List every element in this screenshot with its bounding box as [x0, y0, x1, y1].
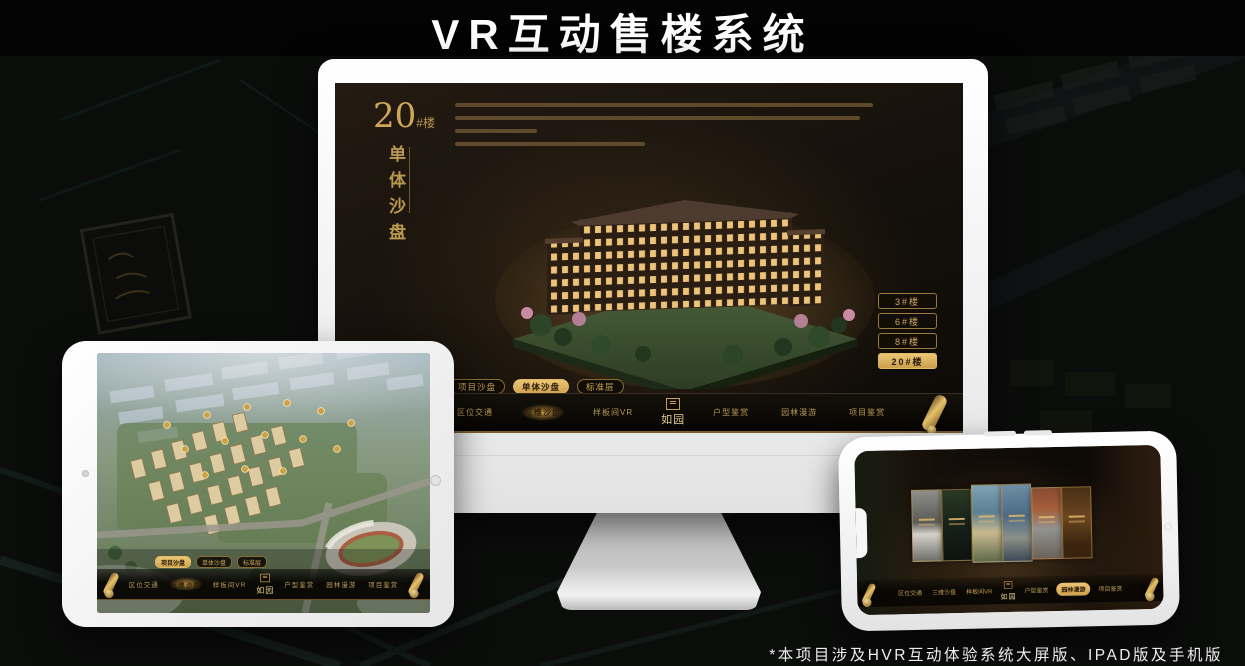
- description-line: [455, 103, 873, 107]
- scroll-menu-icon-left[interactable]: [102, 571, 120, 596]
- tablet-nav-project-gallery[interactable]: 项目鉴赏: [366, 577, 400, 591]
- building-render: [483, 149, 887, 389]
- scroll-menu-icon-left[interactable]: [861, 582, 877, 605]
- tablet-sandbox-tabs: 项目沙盘 单体沙盘 标准层: [155, 556, 267, 568]
- phone-navbar: 区位交通 三维沙盘 样板间VR 如园 户型鉴赏 园林漫游 项目鉴赏: [857, 574, 1163, 607]
- building-description-placeholder: [455, 103, 873, 155]
- phone-nav-showroom-vr[interactable]: 样板间VR: [964, 584, 995, 598]
- tablet-nav-unit-plans[interactable]: 户型鉴赏: [282, 577, 316, 591]
- scene-card-architecture[interactable]: [911, 489, 943, 562]
- nav-item-sandbox[interactable]: 三维沙盘: [521, 404, 565, 421]
- background-plaque: [81, 215, 190, 333]
- tablet-nav-location[interactable]: 区位交通: [127, 577, 161, 591]
- brand-logo-text: 如园: [661, 411, 685, 427]
- phone-screen: 区位交通 三维沙盘 样板间VR 如园 户型鉴赏 园林漫游 项目鉴赏: [854, 445, 1163, 615]
- brand-logo[interactable]: 如园: [661, 398, 685, 427]
- tab-project-sandbox[interactable]: 项目沙盘: [449, 379, 505, 394]
- building-number: 20: [373, 96, 416, 136]
- tablet-tab-standard-floor[interactable]: 标准层: [237, 556, 267, 568]
- tablet-nav-sandbox[interactable]: 三维沙盘: [169, 577, 203, 591]
- phone-nav-sandbox[interactable]: 三维沙盘: [930, 585, 958, 599]
- scene-card-autumn[interactable]: [1031, 487, 1063, 560]
- nav-item-unit-plans[interactable]: 户型鉴赏: [709, 404, 753, 421]
- scene-card-sandbox[interactable]: [971, 484, 1003, 563]
- poster-title: VR互动售楼系统: [0, 1, 1245, 62]
- phone-nav-garden-tour[interactable]: 园林漫游: [1056, 582, 1090, 596]
- floor-button-8[interactable]: 8#楼: [878, 333, 937, 349]
- scroll-menu-icon[interactable]: [920, 393, 948, 433]
- nav-item-showroom-vr[interactable]: 样板间VR: [589, 404, 637, 421]
- promo-poster: VR互动售楼系统 20#楼 单体沙盘: [0, 0, 1245, 666]
- tablet-nav-garden-tour[interactable]: 园林漫游: [324, 577, 358, 591]
- tab-single-sandbox[interactable]: 单体沙盘: [513, 379, 569, 394]
- nav-item-location[interactable]: 区位交通: [453, 404, 497, 421]
- tablet-navbar: 区位交通 三维沙盘 样板间VR 如园 户型鉴赏 园林漫游 项目鉴赏: [97, 569, 430, 600]
- scene-card-interior[interactable]: [1061, 486, 1093, 559]
- description-line: [455, 116, 860, 120]
- scroll-menu-icon-right[interactable]: [1144, 576, 1160, 599]
- phone-volume-button[interactable]: [984, 431, 1016, 437]
- seal-icon: [1004, 581, 1013, 588]
- tablet-tab-project-sandbox[interactable]: 项目沙盘: [155, 556, 191, 568]
- scroll-menu-icon-right[interactable]: [407, 571, 425, 596]
- tablet-camera: [82, 470, 89, 477]
- building-subtitle: 单体沙盘: [383, 145, 408, 249]
- tablet-nav-showroom-vr[interactable]: 样板间VR: [211, 577, 249, 591]
- description-line: [455, 129, 537, 133]
- building-heading: 20#楼: [373, 99, 435, 133]
- floor-button-6[interactable]: 6#楼: [878, 313, 937, 329]
- tablet-brand-logo[interactable]: 如园: [256, 572, 274, 596]
- tablet-device: 项目沙盘 单体沙盘 标准层 区位交通 三维沙盘 样板间VR 如园 户型鉴赏 园林…: [62, 341, 454, 627]
- phone-notch: [855, 508, 867, 558]
- phone-nav-unit-plans[interactable]: 户型鉴赏: [1022, 583, 1050, 597]
- phone-brand-logo[interactable]: 如园: [1000, 579, 1016, 602]
- tablet-screen: 项目沙盘 单体沙盘 标准层 区位交通 三维沙盘 样板间VR 如园 户型鉴赏 园林…: [97, 353, 430, 613]
- brand-logo-text: 如园: [1000, 592, 1016, 602]
- phone-bezel-dot: [1164, 523, 1172, 531]
- building-number-suffix: #楼: [416, 116, 435, 130]
- floor-button-3[interactable]: 3#楼: [878, 293, 937, 309]
- edition-footnote: *本项目涉及HVR互动体验系统大屏版、IPAD版及手机版: [769, 643, 1223, 665]
- scene-card-towers[interactable]: [1001, 484, 1033, 563]
- floor-button-group: 3#楼 6#楼 8#楼 20#楼: [878, 293, 937, 369]
- seal-icon: [666, 398, 680, 410]
- tablet-tab-single-sandbox[interactable]: 单体沙盘: [196, 556, 232, 568]
- phone-nav-project-gallery[interactable]: 项目鉴赏: [1096, 582, 1124, 596]
- brand-logo-text: 如园: [256, 585, 274, 596]
- phone-device: 区位交通 三维沙盘 样板间VR 如园 户型鉴赏 园林漫游 项目鉴赏: [838, 430, 1180, 631]
- scene-card-garden[interactable]: [941, 489, 973, 562]
- seal-icon: [260, 574, 270, 582]
- subtitle-divider: [409, 147, 410, 213]
- nav-item-garden-tour[interactable]: 园林漫游: [777, 404, 821, 421]
- tablet-home-button[interactable]: [430, 475, 441, 486]
- phone-nav-location[interactable]: 区位交通: [896, 586, 924, 600]
- tab-standard-floor[interactable]: 标准层: [577, 379, 624, 394]
- description-line: [455, 142, 645, 146]
- phone-power-button[interactable]: [1024, 430, 1052, 436]
- nav-item-project-gallery[interactable]: 项目鉴赏: [845, 404, 889, 421]
- sandbox-tabs: 项目沙盘 单体沙盘 标准层: [449, 379, 624, 394]
- floor-button-20[interactable]: 20#楼: [878, 353, 937, 369]
